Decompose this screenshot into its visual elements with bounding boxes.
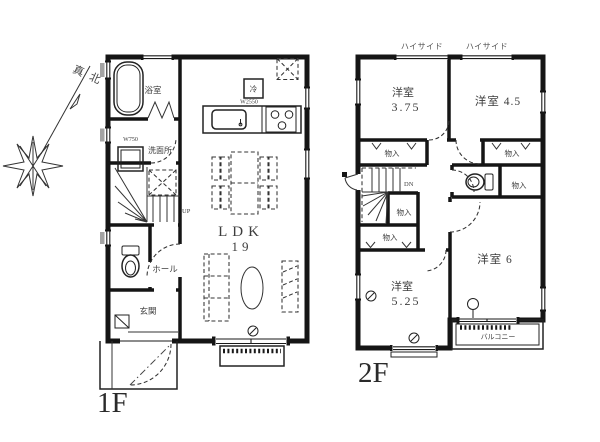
balcony-label: バルコニー [481,333,516,341]
closet-label-4: 物入 [397,207,412,217]
highside-window [394,55,450,61]
north-arrow-head-icon [70,94,80,109]
up-label: UP [182,208,191,215]
entrance-door-leaf [130,344,171,385]
balcony-sliding-door [457,317,520,324]
room375-size: 3.75 [392,100,421,114]
entrance-doorway [120,339,172,344]
window [100,127,111,144]
deck [220,346,284,366]
floor2-plan: ハイサイド ハイサイド 洋室 3.75 洋室 4.5 物入 物入 物入 物入 物… [342,42,546,389]
floor-plan-image: 真北 [0,0,600,442]
compass: 真北 [3,62,109,196]
window [100,230,111,247]
floor2-title: 2F [358,357,389,389]
window [100,61,111,80]
hall-label: ホール [152,264,178,274]
highside-window [460,55,514,61]
sliding-window [212,337,290,346]
floor1-title: 1F [97,387,128,419]
ldk-label: LDK [218,224,264,240]
closet-label-1: 物入 [385,148,400,158]
room45-label: 洋室 4.5 [475,94,521,108]
window [390,345,438,357]
entrance-porch [100,341,177,389]
closet-label-3: 物入 [512,180,527,190]
room375-name: 洋室 [392,85,414,99]
window [355,274,361,301]
washer-width-label: W750 [123,137,138,143]
down-label: DN [404,181,414,188]
fridge-label: 冷 [250,84,258,94]
window [355,79,361,106]
room6-label: 洋室 6 [477,252,513,266]
highside-label-right: ハイサイド [466,42,508,51]
stair-window-swing [342,172,361,190]
floor1-plan: 浴室 W750 洗面所 W2550 冷 UP ホール 玄関 LDK 19 1F [97,55,310,420]
room525-name: 洋室 [391,279,413,293]
closet-label-5: 物入 [383,232,398,242]
closet-label-2: 物入 [505,148,520,158]
window [304,149,310,180]
counter-width-label: W2550 [240,100,258,106]
entrance-label: 玄関 [139,306,156,316]
window [540,91,546,114]
room525-size: 5.25 [392,294,421,308]
window [141,55,174,61]
highside-label-left: ハイサイド [401,42,443,51]
ldk-size-label: 19 [232,239,253,254]
compass-star-sketch [20,142,46,190]
bath-label: 浴室 [144,85,162,95]
window [540,287,546,312]
washroom-label: 洗面所 [148,145,172,155]
window [304,87,310,110]
